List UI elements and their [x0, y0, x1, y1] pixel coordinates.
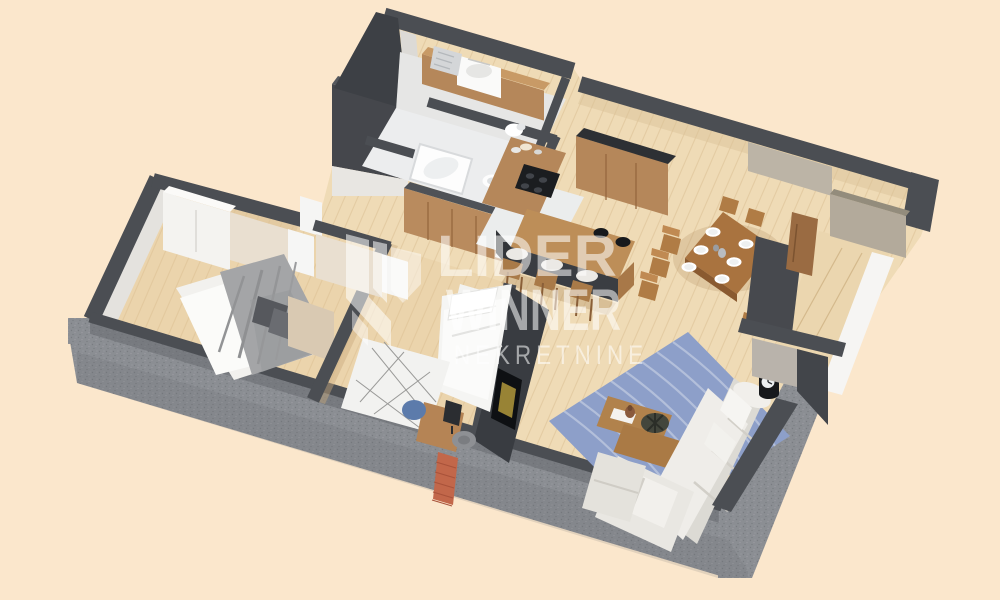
svg-text:WINNER: WINNER	[446, 278, 621, 343]
svg-text:NEKRETNINE: NEKRETNINE	[454, 340, 648, 370]
